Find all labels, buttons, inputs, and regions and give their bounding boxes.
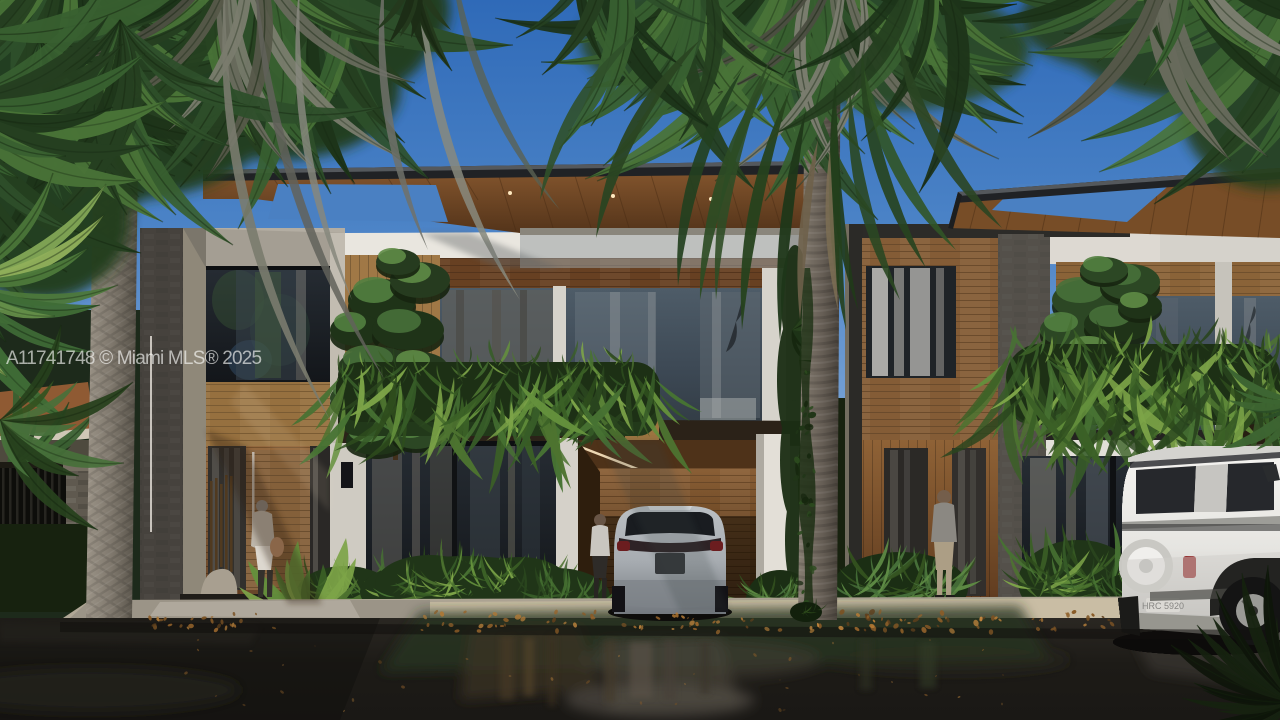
svg-text:A11741748 © Miami MLS® 2025: A11741748 © Miami MLS® 2025 [6, 348, 262, 369]
